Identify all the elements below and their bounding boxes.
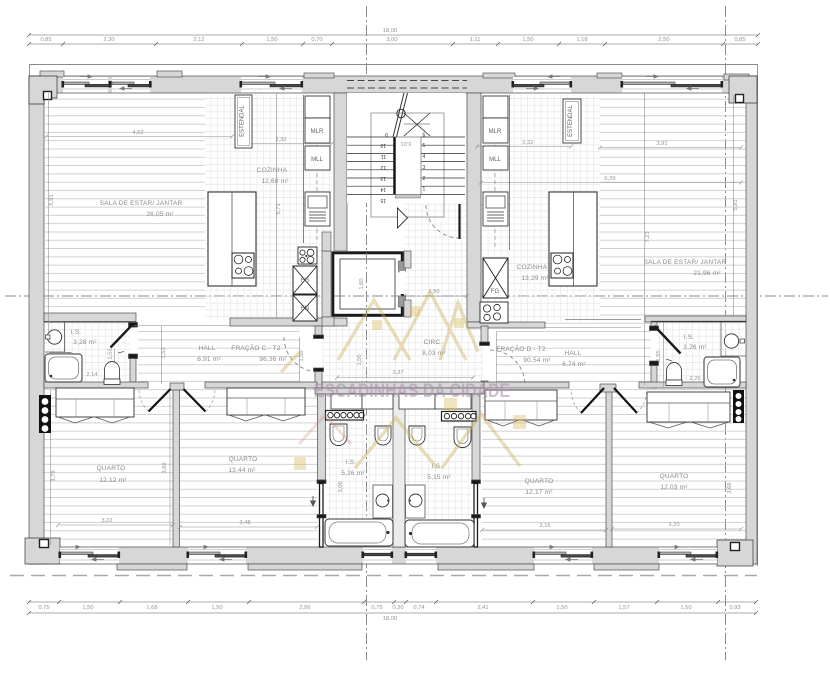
svg-text:1,50: 1,50 — [522, 37, 533, 43]
svg-text:2,14: 2,14 — [86, 372, 98, 378]
svg-text:3,01: 3,01 — [400, 140, 411, 146]
svg-text:6: 6 — [423, 133, 426, 139]
svg-text:SALA DE ESTAR/ JANTAR: SALA DE ESTAR/ JANTAR — [644, 259, 727, 266]
svg-text:1,50: 1,50 — [211, 605, 222, 611]
svg-text:HALL: HALL — [564, 350, 581, 357]
svg-text:1,50: 1,50 — [556, 605, 567, 611]
svg-text:FRAÇÃO C - T2: FRAÇÃO C - T2 — [231, 343, 281, 352]
svg-text:3,22: 3,22 — [101, 518, 112, 524]
svg-text:96,36 m²: 96,36 m² — [259, 356, 287, 363]
svg-text:3,37: 3,37 — [392, 370, 403, 376]
svg-text:1,50: 1,50 — [266, 37, 277, 43]
svg-text:COZINHA: COZINHA — [257, 167, 288, 174]
svg-text:ESCADINHAS DA CIDADE: ESCADINHAS DA CIDADE — [314, 381, 510, 402]
svg-text:1,55: 1,55 — [656, 350, 662, 361]
svg-text:13,44 m²: 13,44 m² — [228, 467, 256, 474]
svg-text:I.S.: I.S. — [71, 329, 82, 336]
svg-text:1,11: 1,11 — [470, 37, 481, 43]
svg-text:2,32: 2,32 — [522, 140, 533, 146]
svg-text:1,60: 1,60 — [359, 278, 365, 289]
svg-text:QUARTO: QUARTO — [229, 456, 258, 463]
svg-text:3,66: 3,66 — [727, 482, 733, 493]
svg-text:3,20: 3,20 — [668, 522, 679, 528]
svg-text:1,68: 1,68 — [146, 605, 157, 611]
svg-text:0,75: 0,75 — [38, 605, 49, 611]
svg-text:1: 1 — [423, 187, 426, 193]
svg-text:FRAÇÃO D - T2: FRAÇÃO D - T2 — [496, 344, 546, 353]
svg-text:COZINHA: COZINHA — [517, 264, 548, 271]
svg-text:5,26 m²: 5,26 m² — [341, 470, 365, 477]
svg-text:1,50: 1,50 — [357, 354, 363, 365]
svg-text:2,86: 2,86 — [299, 605, 310, 611]
svg-text:CIRC.: CIRC. — [424, 339, 443, 346]
svg-text:1,53: 1,53 — [108, 348, 114, 359]
svg-text:3,16: 3,16 — [539, 523, 550, 529]
svg-text:5,91: 5,91 — [733, 199, 739, 210]
svg-text:13,29 m²: 13,29 m² — [521, 275, 549, 282]
svg-text:3,26 m²: 3,26 m² — [683, 344, 707, 351]
svg-text:0,75: 0,75 — [371, 605, 382, 611]
svg-text:1,57: 1,57 — [618, 605, 629, 611]
svg-text:FN: FN — [301, 306, 309, 312]
svg-text:5: 5 — [423, 143, 426, 149]
svg-text:3,28 m²: 3,28 m² — [73, 339, 97, 346]
svg-text:13: 13 — [380, 175, 386, 181]
svg-text:2: 2 — [423, 176, 426, 182]
svg-text:2,25: 2,25 — [689, 376, 700, 382]
svg-text:0,85: 0,85 — [734, 37, 745, 43]
svg-text:4: 4 — [423, 154, 426, 160]
svg-text:QUARTO: QUARTO — [97, 465, 126, 472]
svg-text:90,54 m²: 90,54 m² — [523, 357, 551, 364]
svg-text:18,00: 18,00 — [383, 28, 398, 34]
svg-text:ESTENDAL: ESTENDAL — [240, 105, 246, 137]
svg-text:11: 11 — [381, 153, 386, 159]
svg-text:0,93: 0,93 — [729, 605, 740, 611]
svg-text:1,50: 1,50 — [680, 605, 691, 611]
svg-text:MLR: MLR — [489, 129, 502, 135]
svg-text:3,78: 3,78 — [51, 470, 57, 481]
svg-text:2,32: 2,32 — [275, 137, 286, 143]
svg-text:6,91 m²: 6,91 m² — [197, 356, 221, 363]
svg-text:I.S.: I.S. — [346, 459, 357, 466]
svg-text:0,30: 0,30 — [392, 605, 403, 611]
svg-text:0,70: 0,70 — [311, 37, 322, 43]
svg-text:4,62: 4,62 — [132, 130, 143, 136]
svg-text:5,71: 5,71 — [276, 203, 282, 214]
svg-text:MLL: MLL — [311, 157, 323, 163]
svg-text:9: 9 — [385, 131, 388, 137]
svg-text:2,30: 2,30 — [103, 37, 114, 43]
svg-text:3,88: 3,88 — [162, 462, 168, 473]
svg-text:18,00: 18,00 — [383, 616, 398, 622]
svg-text:21,96 m²: 21,96 m² — [693, 270, 721, 277]
svg-text:SALA DE ESTAR/ JANTAR: SALA DE ESTAR/ JANTAR — [100, 200, 183, 207]
svg-text:FG: FG — [491, 289, 500, 295]
svg-text:2,12: 2,12 — [193, 37, 204, 43]
svg-text:3,00: 3,00 — [386, 37, 397, 43]
svg-text:12,60 m²: 12,60 m² — [261, 178, 289, 185]
svg-text:MLR: MLR — [311, 129, 324, 135]
svg-text:1,18: 1,18 — [576, 37, 587, 43]
svg-text:12: 12 — [380, 164, 386, 170]
svg-text:14: 14 — [380, 186, 386, 192]
svg-text:1,50: 1,50 — [82, 605, 93, 611]
svg-text:0,85: 0,85 — [40, 37, 51, 43]
svg-text:3,91: 3,91 — [656, 141, 667, 147]
svg-text:3,06: 3,06 — [338, 481, 344, 492]
svg-text:12,03 m²: 12,03 m² — [660, 484, 688, 491]
svg-text:7,23: 7,23 — [645, 231, 651, 242]
svg-text:5,15 m²: 5,15 m² — [427, 474, 451, 481]
svg-text:FG: FG — [301, 278, 310, 284]
svg-text:15: 15 — [380, 197, 386, 203]
svg-text:6,39: 6,39 — [604, 176, 615, 182]
svg-text:0,74: 0,74 — [413, 605, 425, 611]
svg-text:26,05 m²: 26,05 m² — [146, 211, 174, 218]
svg-text:1,53: 1,53 — [161, 347, 167, 358]
svg-text:3: 3 — [423, 165, 426, 171]
svg-text:I.S.: I.S. — [684, 334, 695, 341]
svg-text:3,48: 3,48 — [239, 520, 250, 526]
svg-text:6,74 m²: 6,74 m² — [562, 361, 586, 368]
svg-text:2,41: 2,41 — [477, 605, 488, 611]
svg-text:QUARTO: QUARTO — [660, 473, 689, 480]
svg-text:2,50: 2,50 — [658, 37, 669, 43]
svg-text:10: 10 — [380, 142, 386, 148]
svg-text:5,91: 5,91 — [49, 194, 55, 205]
svg-text:12,12 m²: 12,12 m² — [99, 477, 127, 484]
svg-text:ESTENDAL: ESTENDAL — [568, 105, 574, 137]
svg-text:QUARTO: QUARTO — [525, 478, 554, 485]
svg-text:12,17 m²: 12,17 m² — [525, 489, 553, 496]
svg-text:MLL: MLL — [489, 157, 501, 163]
svg-text:HALL: HALL — [198, 345, 215, 352]
